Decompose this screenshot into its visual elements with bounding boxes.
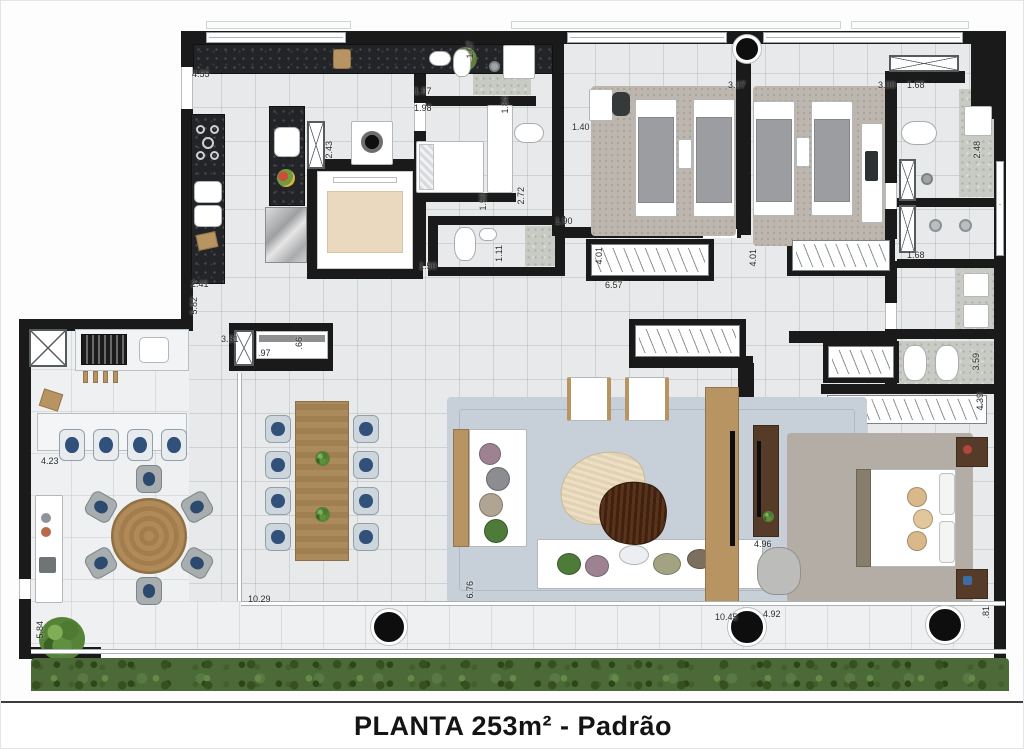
dimension-label: 4.55 xyxy=(192,70,210,79)
dimension-label: 6.76 xyxy=(466,581,475,599)
dimension-label: 1.90 xyxy=(555,217,573,226)
dimension-label: 1.68 xyxy=(907,251,925,260)
dimension-label: 2.43 xyxy=(325,141,334,159)
dimension-label: .66 xyxy=(295,337,304,350)
dimension-labels-layer: 4.551.971.981.071.841.403.073.001.682.48… xyxy=(1,1,1024,701)
dimension-label: 10.29 xyxy=(248,595,271,604)
dimension-label: 3.31 xyxy=(221,335,239,344)
dimension-label: 4.96 xyxy=(754,540,772,549)
dimension-label: 1.97 xyxy=(414,87,432,96)
dimension-label: 10.45 xyxy=(715,613,738,622)
dimension-label: 4.39 xyxy=(976,393,985,411)
dimension-label: 4.01 xyxy=(595,247,604,265)
dimension-label: 2.48 xyxy=(973,141,982,159)
dimension-label: .97 xyxy=(258,349,271,358)
title-bar: PLANTA 253m² - Padrão xyxy=(1,701,1024,749)
dimension-label: 1.84 xyxy=(501,96,510,114)
dimension-label: 2.41 xyxy=(191,280,209,289)
dimension-label: 5.82 xyxy=(190,297,199,315)
dimension-label: 6.57 xyxy=(605,281,623,290)
dimension-label: 3.07 xyxy=(728,81,746,90)
dimension-label: 1.40 xyxy=(572,123,590,132)
plan-title: PLANTA 253m² - Padrão xyxy=(1,711,1024,742)
dimension-label: 3.00 xyxy=(878,81,896,90)
dimension-label: 1.68 xyxy=(907,81,925,90)
dimension-label: 1.50 xyxy=(419,262,437,271)
dimension-label: 5.84 xyxy=(36,621,45,639)
floor-plan: 4.551.971.981.071.841.403.073.001.682.48… xyxy=(0,0,1024,749)
dimension-label: 1.07 xyxy=(466,41,475,59)
dimension-label: 2.72 xyxy=(517,187,526,205)
dimension-label: 1.11 xyxy=(495,245,504,262)
dimension-label: 4.23 xyxy=(41,457,59,466)
dimension-label: 1.98 xyxy=(414,104,432,113)
dimension-label: 4.92 xyxy=(763,610,781,619)
dimension-label: 3.59 xyxy=(972,353,981,371)
dimension-label: 4.01 xyxy=(749,249,758,267)
dimension-label: .81 xyxy=(982,606,991,619)
dimension-label: 1.50 xyxy=(479,193,488,211)
